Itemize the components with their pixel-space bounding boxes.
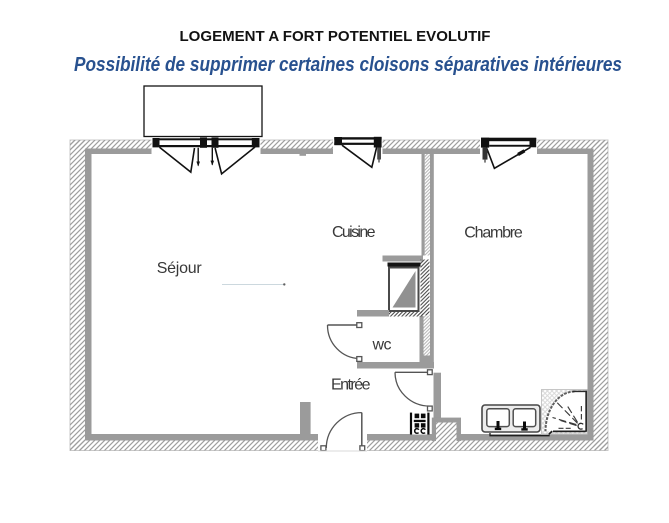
svg-text:Cuisine: Cuisine xyxy=(332,224,376,241)
svg-text:Chambre: Chambre xyxy=(464,225,523,242)
svg-text:Possibilité de supprimer certa: Possibilité de supprimer certaines clois… xyxy=(74,53,622,76)
svg-text:LOGEMENT A FORT POTENTIEL EVOL: LOGEMENT A FORT POTENTIEL EVOLUTIF xyxy=(180,28,491,45)
svg-text:Séjour: Séjour xyxy=(157,260,203,277)
svg-text:wc: wc xyxy=(372,337,392,354)
svg-text:Entrée: Entrée xyxy=(331,377,371,394)
